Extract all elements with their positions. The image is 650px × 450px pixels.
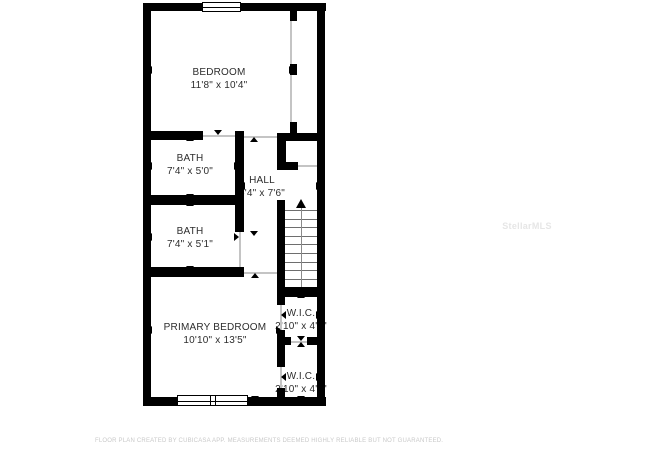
wall-wic2-left-top bbox=[277, 345, 285, 367]
window-mullion bbox=[203, 7, 240, 8]
measure-arrow-bath-2-right bbox=[234, 233, 239, 241]
measure-arrow-wic-2-up bbox=[297, 342, 305, 347]
footer-disclaimer: FLOOR PLAN CREATED BY CUBICASA APP. MEAS… bbox=[95, 438, 395, 444]
wall-pocket-bottom-stub bbox=[277, 162, 298, 170]
wall-outer-left bbox=[143, 3, 151, 406]
bedroom-door-opening bbox=[244, 136, 277, 138]
bedroom-right-opening-upper bbox=[290, 21, 292, 64]
floorplan-page: BEDROOM 11'8" x 10'4" BATH 7'4" x 5'0" H… bbox=[0, 0, 650, 450]
wall-stairs-bottom-wall bbox=[277, 287, 325, 297]
measure-arrow-wic-2-left bbox=[281, 373, 286, 381]
wall-bedroom-bath-wall bbox=[151, 131, 203, 140]
measure-arrow-primary-bedroom-up bbox=[251, 273, 259, 278]
measure-arrow-hall-down bbox=[250, 231, 258, 236]
bath1-door-opening bbox=[203, 135, 235, 137]
wall-bedroom-right-mid bbox=[290, 64, 297, 75]
wall-bath2-bottom-wall bbox=[151, 267, 244, 277]
wall-bath-separator bbox=[151, 195, 236, 205]
measure-arrow-wic-1-left bbox=[281, 311, 286, 319]
wall-wic2-left-bottom bbox=[277, 388, 285, 397]
stair-center-line bbox=[301, 207, 302, 287]
stair-up-arrow bbox=[296, 199, 306, 208]
wall-wic1-left-top bbox=[277, 297, 285, 305]
wall-wic-separator-left bbox=[277, 337, 291, 345]
wall-outer-right bbox=[317, 3, 325, 406]
bath2-door-opening bbox=[239, 232, 241, 267]
measure-arrow-bedroom-down bbox=[214, 130, 222, 135]
wall-strip-top-wall bbox=[277, 133, 317, 141]
hall-primary-passage bbox=[244, 272, 277, 274]
wall-stairs-left-wall bbox=[277, 200, 285, 290]
wall-wic-separator-right bbox=[307, 337, 325, 345]
wall-bedroom-right-top bbox=[290, 11, 297, 21]
window-mullion bbox=[178, 401, 247, 402]
mls-watermark: StellarMLS bbox=[502, 221, 552, 231]
wall-bedroom-right-bottom bbox=[290, 122, 297, 133]
primary-bedroom-window bbox=[177, 395, 248, 406]
measure-arrow-wic-1-down bbox=[297, 336, 305, 341]
wall-hall-left-wall bbox=[235, 131, 244, 232]
bedroom-window bbox=[202, 2, 241, 12]
bedroom-right-opening-lower bbox=[290, 75, 292, 122]
geometry-layer bbox=[0, 0, 650, 450]
measure-arrow-hall-up bbox=[250, 137, 258, 142]
pocket-opening bbox=[298, 165, 317, 167]
wall-wic1-left-bottom bbox=[277, 330, 285, 337]
